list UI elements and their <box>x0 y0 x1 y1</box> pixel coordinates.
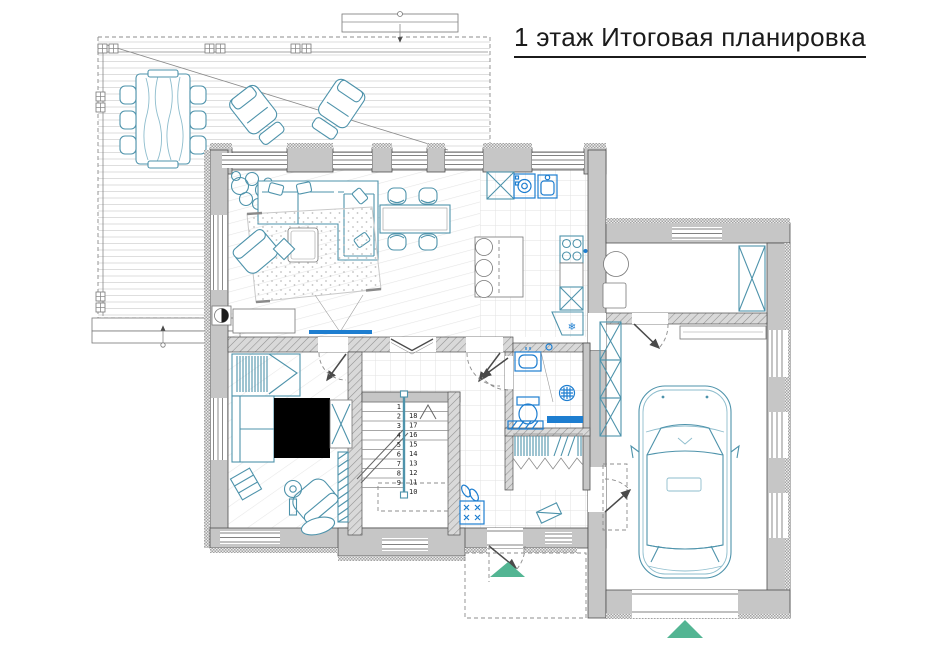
stair-step-number: 6 <box>397 451 401 459</box>
floor-plan-svg: ❄ <box>0 0 940 666</box>
stair-step-number: 11 <box>409 479 417 487</box>
utility-garage-wall <box>606 313 767 324</box>
stair-step-number: 7 <box>397 460 401 468</box>
garage-gate <box>632 590 738 618</box>
stair-step-number: 14 <box>409 450 417 458</box>
entry-entrance-arrow <box>490 562 525 577</box>
stair-step-number: 17 <box>409 422 417 430</box>
stair-numbers-right: 181716151413121110 <box>409 412 417 496</box>
stair-step-number: 9 <box>397 479 401 487</box>
tv-console <box>233 309 295 333</box>
car <box>631 386 739 578</box>
porches <box>465 553 586 618</box>
stair-step-number: 8 <box>397 470 401 478</box>
entry-porch <box>465 553 586 618</box>
window <box>333 153 372 168</box>
utility-unit <box>603 283 626 308</box>
window <box>532 153 584 168</box>
sofa-bed <box>232 396 330 462</box>
window <box>769 412 788 458</box>
stair-step-number: 1 <box>397 403 401 411</box>
utility-garage-door <box>634 324 668 348</box>
shower-bench <box>547 416 583 423</box>
utility-room <box>603 246 765 311</box>
window <box>392 153 427 168</box>
utility-wardrobe <box>739 246 765 311</box>
window <box>769 330 788 377</box>
floor-plan-canvas: 1 этаж Итоговая планировка <box>0 0 940 666</box>
kitchen-counter <box>560 263 583 287</box>
window <box>220 531 280 544</box>
window <box>222 153 287 168</box>
stair-step-number: 15 <box>409 441 417 449</box>
window <box>382 538 428 551</box>
coffee-table <box>288 228 318 262</box>
kitchen-island <box>475 237 523 298</box>
kitchen-wing-opening <box>588 313 606 350</box>
utility-door-opening <box>632 313 668 324</box>
stair-step-number: 10 <box>409 488 417 496</box>
stair-numbers-left: 123456789 <box>397 403 401 487</box>
hall-garage-door <box>605 479 630 512</box>
stair-step-number: 13 <box>409 460 417 468</box>
window <box>211 398 227 460</box>
snowflake-icon: ❄ <box>568 322 576 333</box>
stair-step-number: 16 <box>409 431 417 439</box>
desk <box>330 400 352 448</box>
stair-step-number: 3 <box>397 422 401 430</box>
window <box>445 153 483 168</box>
stair-step-number: 18 <box>409 412 417 420</box>
stair-step-number: 4 <box>397 432 401 440</box>
shower-drain <box>560 386 575 401</box>
boiler-icon <box>604 252 629 277</box>
stair-step-number: 12 <box>409 469 417 477</box>
window <box>211 215 227 290</box>
stair-step-number: 2 <box>397 413 401 421</box>
workbench <box>680 326 766 339</box>
window <box>769 493 788 538</box>
window <box>672 227 722 240</box>
garage-entrance-arrow <box>667 620 703 638</box>
window <box>545 532 572 544</box>
wardrobe-floor <box>505 432 583 490</box>
section-marker <box>212 306 231 325</box>
garage-storage-zone <box>603 464 627 530</box>
stair-step-number: 5 <box>397 441 401 449</box>
